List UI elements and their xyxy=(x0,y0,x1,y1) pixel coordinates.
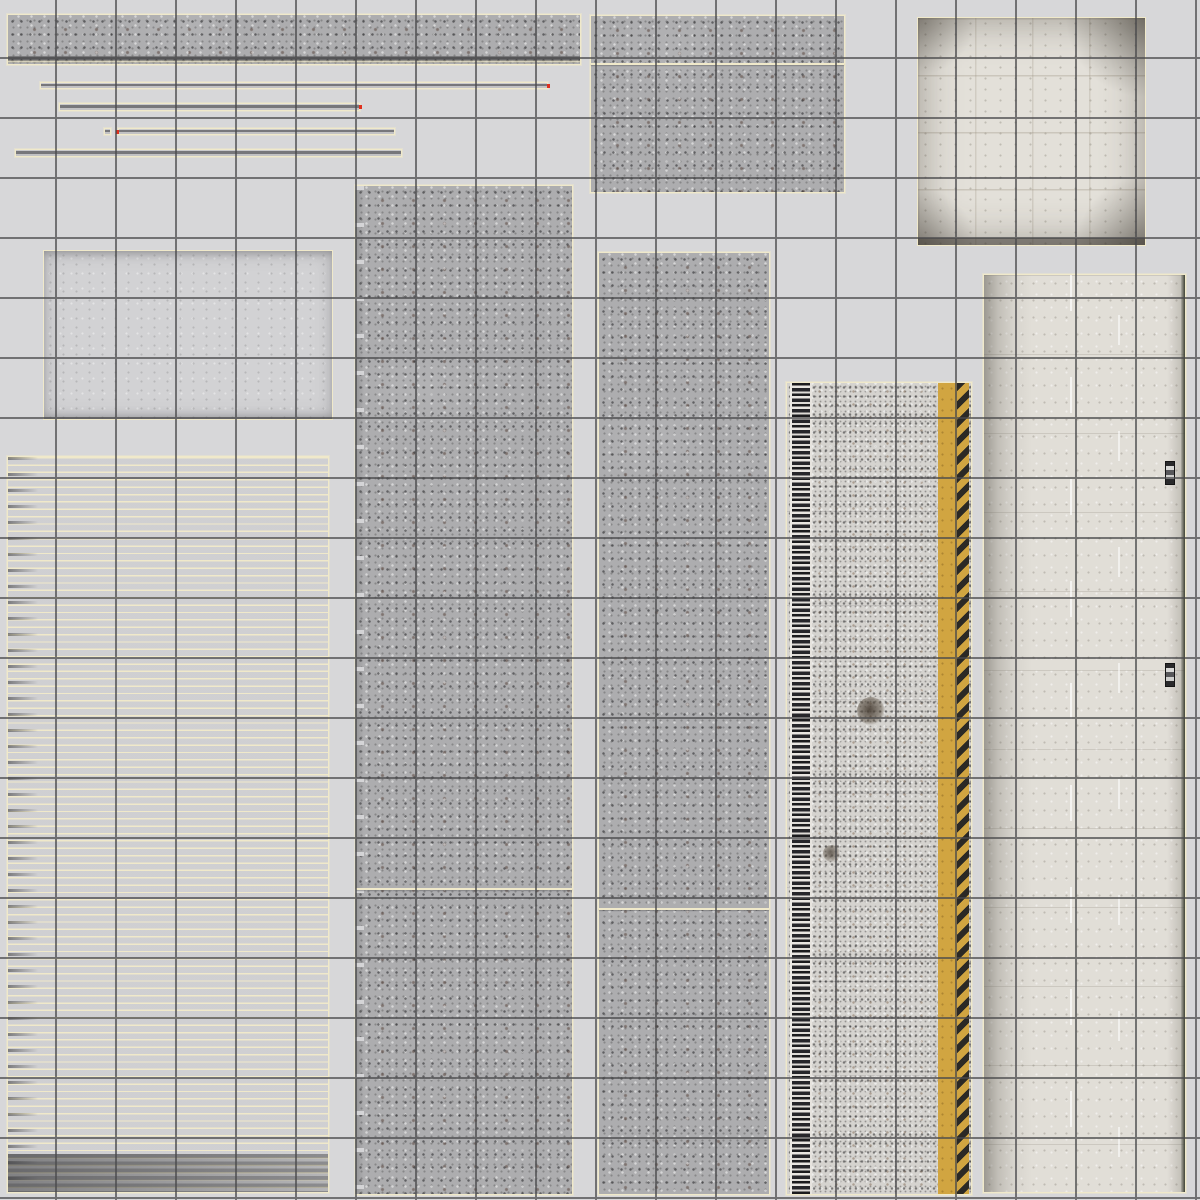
white-dash-2 xyxy=(1118,315,1120,1192)
white-block-square-top-right xyxy=(917,17,1146,246)
striped-rail-sheet xyxy=(7,456,329,1193)
truck-2 xyxy=(1165,663,1175,687)
divider-a xyxy=(591,63,844,65)
rail-strip-1 xyxy=(40,82,548,89)
divider-b xyxy=(356,888,572,890)
concrete-column-left xyxy=(355,185,573,1195)
white-dash-1 xyxy=(1070,275,1072,1192)
band-yellow xyxy=(938,383,957,1194)
bottom-band xyxy=(8,56,580,63)
asphalt-road-column xyxy=(786,382,972,1195)
atlas-canvas xyxy=(0,0,1200,1200)
tick-r xyxy=(547,84,550,88)
tick-l xyxy=(116,130,119,134)
tick-r xyxy=(359,105,362,109)
concrete-block-top-middle xyxy=(590,15,845,193)
rail-strip-4 xyxy=(15,149,402,157)
light-concrete-rect xyxy=(43,250,333,420)
stain-1 xyxy=(857,697,885,725)
runway-slab-column-right xyxy=(983,274,1186,1193)
truck-1 xyxy=(1165,461,1175,485)
rail-strip-2 xyxy=(59,103,360,111)
rail-strip-3 xyxy=(118,128,395,135)
stain-2 xyxy=(823,845,840,862)
edge-line xyxy=(1181,275,1185,1192)
band-hazard xyxy=(957,383,969,1194)
rail-fragment xyxy=(104,128,111,135)
band-ruler xyxy=(790,383,812,1194)
divider-c xyxy=(599,908,769,910)
concrete-column-middle xyxy=(598,252,770,1195)
concrete-strip-long-top xyxy=(7,14,581,65)
